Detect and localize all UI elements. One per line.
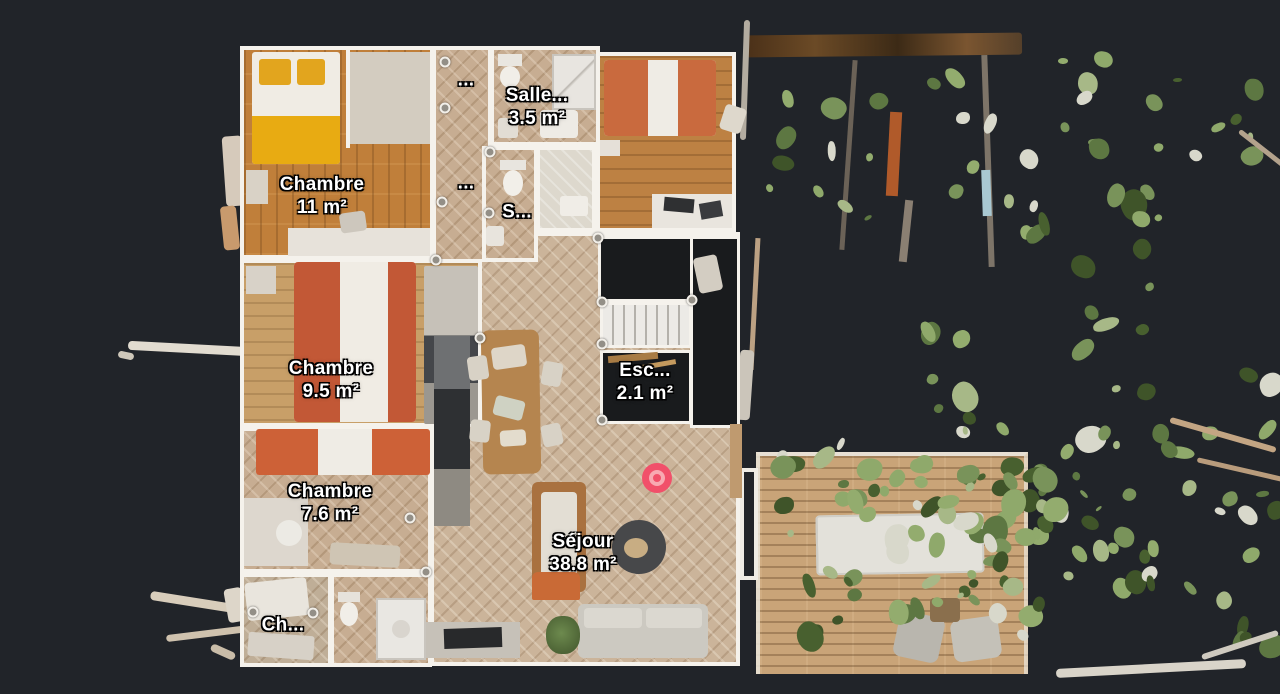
foliage-leaf <box>1074 89 1095 108</box>
foliage-leaf <box>1109 575 1136 602</box>
shower-drain <box>392 620 410 638</box>
foliage-leaf <box>1037 212 1051 238</box>
foliage-leaf <box>811 183 824 198</box>
foliage-leaf <box>947 182 966 201</box>
foliage-leaf <box>1037 484 1050 497</box>
foliage-leaf <box>1235 501 1261 529</box>
sink <box>540 110 578 138</box>
tv <box>444 627 503 649</box>
toilet <box>498 54 522 66</box>
pergola-post <box>899 200 913 262</box>
bench <box>329 542 400 568</box>
foliage-leaf <box>916 318 945 348</box>
foliage-leaf <box>925 372 939 386</box>
foliage-leaf <box>1240 545 1262 565</box>
desk <box>288 228 430 256</box>
foliage-leaf <box>1058 58 1068 65</box>
terrace-railing <box>740 468 758 580</box>
door-threshold <box>730 424 742 498</box>
foliage-leaf <box>1103 181 1129 210</box>
foliage-leaf <box>1068 336 1098 364</box>
bed-blanket <box>678 60 716 136</box>
foliage-leaf <box>1131 210 1150 227</box>
sink <box>486 226 504 246</box>
foliage-leaf <box>1034 498 1051 515</box>
foliage-leaf <box>1236 363 1260 385</box>
foliage-leaf <box>1095 423 1114 443</box>
foliage-leaf <box>1256 490 1269 496</box>
foliage-leaf <box>1146 575 1156 591</box>
scan-artifact <box>220 205 241 250</box>
pergola-beam <box>746 33 1022 58</box>
foliage-leaf <box>1235 615 1251 639</box>
foliage-leaf <box>1070 419 1110 458</box>
sink <box>560 196 588 216</box>
foliage-leaf <box>1134 322 1151 338</box>
foliage-leaf <box>962 411 976 426</box>
plant <box>546 616 580 654</box>
toilet <box>500 160 526 170</box>
foliage-leaf <box>1070 470 1081 481</box>
foliage-leaf <box>1092 314 1121 333</box>
bed-pillow <box>259 59 291 85</box>
terrace-side-table <box>930 598 960 622</box>
foliage-leaf <box>1138 182 1157 203</box>
scan-artifact <box>1201 630 1279 660</box>
foliage-leaf <box>1228 111 1243 127</box>
table-items <box>491 344 528 371</box>
position-marker-core <box>653 474 661 482</box>
foliage-leaf <box>764 182 775 193</box>
foliage-leaf <box>1115 186 1152 225</box>
foliage-leaf <box>1256 369 1280 399</box>
scan-artifact <box>117 350 134 360</box>
foliage-leaf <box>781 89 795 108</box>
bed-blanket <box>372 429 430 475</box>
bed-blanket <box>294 262 340 422</box>
foliage-leaf <box>933 403 944 415</box>
foliage-leaf <box>1030 529 1049 545</box>
foliage-leaf <box>1265 499 1280 522</box>
foliage-leaf <box>995 420 1012 438</box>
pergola-post <box>981 55 994 267</box>
coffee-table-bowl <box>624 538 648 558</box>
foliage-leaf <box>1138 564 1160 584</box>
foliage-leaf <box>864 214 873 221</box>
pergola-post <box>839 60 857 250</box>
sofa-cushion <box>541 492 577 582</box>
foliage-leaf <box>1093 50 1113 68</box>
chair <box>540 360 564 387</box>
chair <box>276 520 302 546</box>
foliage-leaf <box>1030 595 1047 614</box>
foliage-leaf <box>1187 147 1204 164</box>
scan-artifact <box>166 625 250 642</box>
foliage-leaf <box>1018 224 1034 241</box>
foliage-leaf <box>1152 141 1165 153</box>
foliage-leaf <box>1033 464 1050 488</box>
foliage-leaf <box>1028 464 1061 496</box>
bed-pillow <box>297 59 325 85</box>
foliage-leaf <box>1061 122 1070 132</box>
pergola-post <box>981 170 992 216</box>
foliage-leaf <box>1182 480 1198 497</box>
foliage-leaf <box>1088 137 1111 160</box>
table-items <box>499 429 526 447</box>
foliage-leaf <box>942 64 968 91</box>
bed-blanket <box>604 60 648 136</box>
foliage-leaf <box>956 425 971 438</box>
scan-artifact <box>209 643 236 661</box>
chair <box>339 210 368 233</box>
pergola-post <box>886 112 902 197</box>
toilet <box>340 602 358 626</box>
foliage-leaf <box>1062 571 1073 581</box>
display-cabinet <box>434 336 470 526</box>
foliage-leaf <box>1026 226 1037 237</box>
chair <box>663 197 694 214</box>
toilet <box>503 170 523 196</box>
scan-artifact <box>1238 129 1280 176</box>
foliage-leaf <box>1112 440 1120 449</box>
foliage-leaf <box>1245 79 1264 101</box>
sofa-cushion <box>584 608 642 628</box>
foliage-leaf <box>1143 91 1165 114</box>
toilet <box>500 66 520 88</box>
foliage-leaf <box>1129 235 1156 262</box>
foliage-leaf <box>1093 540 1109 563</box>
foliage-leaf <box>828 141 837 161</box>
foliage-leaf <box>1035 514 1055 536</box>
nightstand <box>246 170 268 204</box>
sofa-cushion <box>646 608 702 628</box>
staircase[interactable] <box>600 302 692 348</box>
foliage-leaf <box>1111 525 1136 549</box>
dresser <box>247 632 315 661</box>
nightstand <box>246 266 276 294</box>
foliage-leaf <box>1043 496 1070 522</box>
foliage-leaf <box>1120 567 1150 598</box>
foliage-leaf <box>866 88 891 113</box>
foliage-leaf <box>1028 198 1040 212</box>
foliage-leaf <box>965 159 980 176</box>
position-marker[interactable] <box>642 463 672 493</box>
foliage-leaf <box>817 93 850 125</box>
bed-blanket <box>388 262 416 422</box>
foliage-leaf <box>772 123 801 153</box>
foliage-leaf <box>1057 442 1076 461</box>
foliage-leaf <box>1147 540 1159 557</box>
foliage-leaf <box>1214 506 1227 517</box>
foliage-leaf <box>1173 78 1183 82</box>
foliage-leaf <box>1083 303 1100 321</box>
foliage-leaf <box>1003 193 1016 209</box>
foliage-leaf <box>1121 485 1139 503</box>
foliage-leaf <box>1212 589 1235 612</box>
nightstand <box>600 140 620 156</box>
foliage-leaf <box>963 427 969 435</box>
foliage-leaf <box>1112 385 1122 393</box>
foliage-leaf <box>956 112 970 125</box>
foliage-leaf <box>1136 381 1157 402</box>
foliage-leaf <box>1015 145 1042 171</box>
foliage-leaf <box>866 152 874 161</box>
wardrobe <box>350 52 430 144</box>
foliage-leaf <box>835 436 846 450</box>
chair <box>469 419 491 443</box>
terrace-chair <box>949 615 1002 663</box>
scan-artifact <box>1169 417 1276 453</box>
toilet <box>338 592 360 602</box>
foliage-leaf <box>1031 460 1050 479</box>
scan-artifact <box>1056 659 1246 678</box>
foliage-leaf <box>1210 121 1227 134</box>
foliage-leaf <box>1149 422 1171 446</box>
shower <box>552 54 596 110</box>
foliage-leaf <box>1168 445 1195 462</box>
foliage-leaf <box>1070 542 1090 565</box>
foliage-leaf <box>918 319 937 344</box>
foliage-leaf <box>1033 527 1041 541</box>
terrace-table <box>815 513 984 576</box>
foliage-leaf <box>1153 213 1163 223</box>
floorplan-scene[interactable]: Chambre 11 m² Chambre 9.5 m² Chambre 7.6… <box>0 0 1280 694</box>
foliage-leaf <box>1087 137 1106 150</box>
chair <box>466 355 489 382</box>
foliage-leaf <box>1158 438 1180 461</box>
garden-area[interactable] <box>740 0 1280 694</box>
foliage-leaf <box>1023 221 1050 246</box>
foliage-leaf <box>771 153 797 174</box>
armchair <box>532 572 580 600</box>
foliage-leaf <box>946 377 985 417</box>
foliage-leaf <box>951 328 973 350</box>
foliage-leaf <box>925 75 942 92</box>
chair <box>540 422 564 448</box>
foliage-leaf <box>1049 501 1071 524</box>
foliage-leaf <box>1144 281 1155 291</box>
scan-artifact <box>1197 457 1280 483</box>
foliage-leaf <box>1138 549 1151 565</box>
bed-blanket <box>252 116 340 164</box>
room-bain-2[interactable] <box>536 146 596 232</box>
foliage-leaf <box>1068 252 1098 280</box>
sink <box>498 118 518 138</box>
scan-artifact <box>128 341 250 356</box>
foliage-leaf <box>1220 490 1240 509</box>
bed <box>244 577 310 621</box>
foliage-leaf <box>1107 542 1120 555</box>
bed-blanket <box>256 429 318 475</box>
foliage-leaf <box>1095 505 1103 512</box>
foliage-leaf <box>1079 512 1102 534</box>
foliage-leaf <box>1077 71 1100 96</box>
foliage-leaf <box>1079 489 1089 499</box>
foliage-leaf <box>1181 580 1198 598</box>
foliage-leaf <box>1255 418 1279 442</box>
